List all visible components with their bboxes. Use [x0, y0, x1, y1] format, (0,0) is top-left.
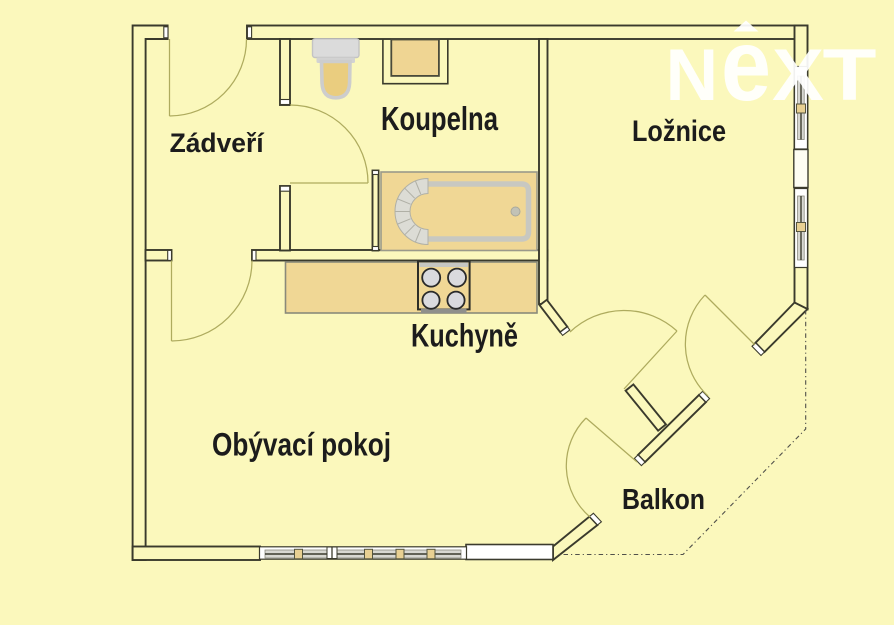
svg-text:Zádveří: Zádveří — [170, 128, 266, 158]
svg-text:Ložnice: Ložnice — [632, 115, 726, 148]
svg-text:N: N — [666, 35, 719, 116]
svg-text:Balkon: Balkon — [622, 484, 705, 516]
svg-text:X: X — [772, 35, 824, 116]
svg-text:e: e — [721, 8, 771, 122]
svg-text:Kuchyně: Kuchyně — [411, 317, 518, 353]
svg-text:Koupelna: Koupelna — [381, 101, 498, 138]
svg-text:Obývací pokoj: Obývací pokoj — [212, 427, 391, 463]
svg-text:T: T — [823, 35, 877, 116]
